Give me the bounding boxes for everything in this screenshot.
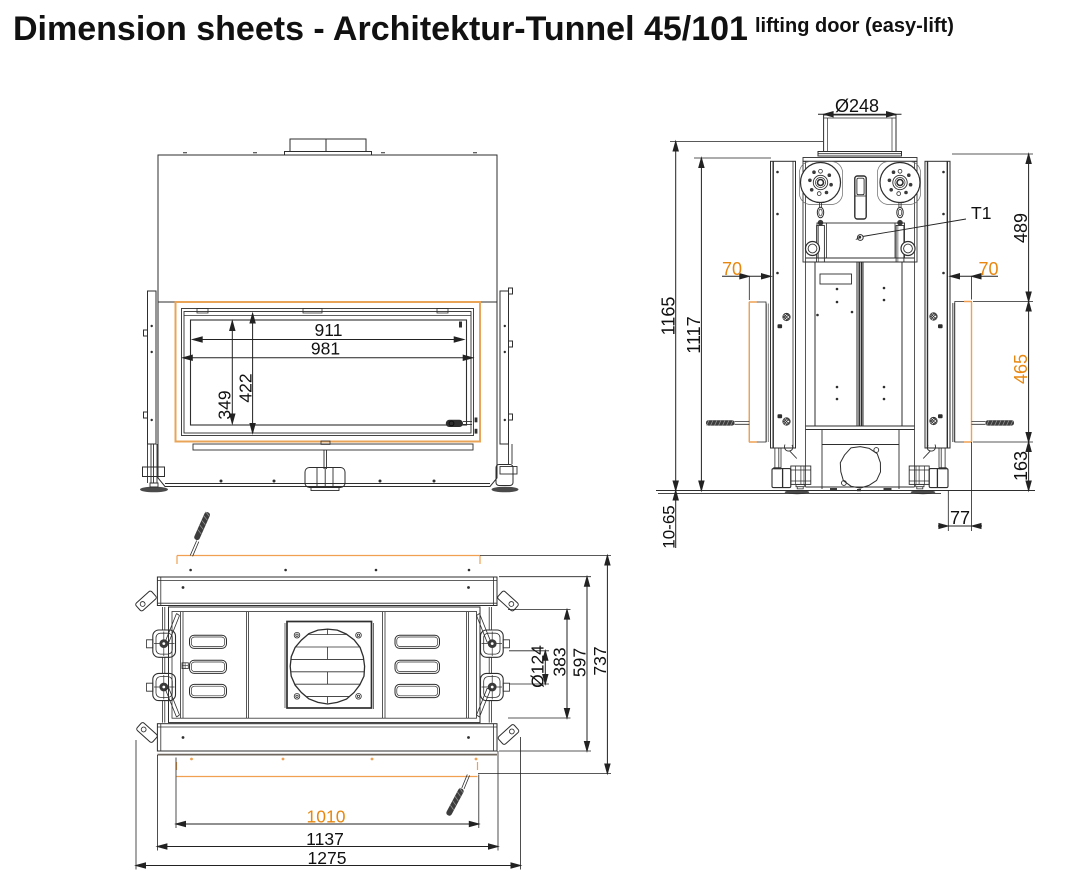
svg-text:70: 70	[978, 259, 998, 279]
svg-text:10-65: 10-65	[659, 505, 678, 548]
svg-text:1137: 1137	[306, 829, 344, 849]
svg-text:1117: 1117	[684, 316, 704, 353]
svg-text:981: 981	[311, 339, 340, 359]
svg-text:T1: T1	[971, 203, 991, 223]
svg-text:1275: 1275	[308, 848, 347, 868]
svg-text:911: 911	[315, 320, 343, 340]
svg-text:597: 597	[570, 648, 590, 677]
svg-text:163: 163	[1011, 451, 1031, 481]
svg-text:349: 349	[215, 390, 235, 419]
svg-text:737: 737	[590, 646, 610, 675]
svg-text:489: 489	[1011, 213, 1031, 243]
svg-text:70: 70	[722, 259, 742, 279]
svg-text:77: 77	[950, 508, 970, 528]
svg-text:422: 422	[235, 373, 255, 402]
svg-text:383: 383	[550, 647, 570, 676]
svg-text:1165: 1165	[658, 297, 678, 336]
svg-text:Dimension sheets - Architektur: Dimension sheets - Architektur-Tunnel 45…	[13, 10, 748, 48]
svg-text:Ø248: Ø248	[835, 96, 879, 116]
svg-text:465: 465	[1011, 354, 1031, 384]
svg-text:Ø124: Ø124	[528, 645, 548, 688]
svg-text:lifting door (easy-lift): lifting door (easy-lift)	[755, 15, 954, 37]
svg-text:1010: 1010	[307, 807, 346, 827]
